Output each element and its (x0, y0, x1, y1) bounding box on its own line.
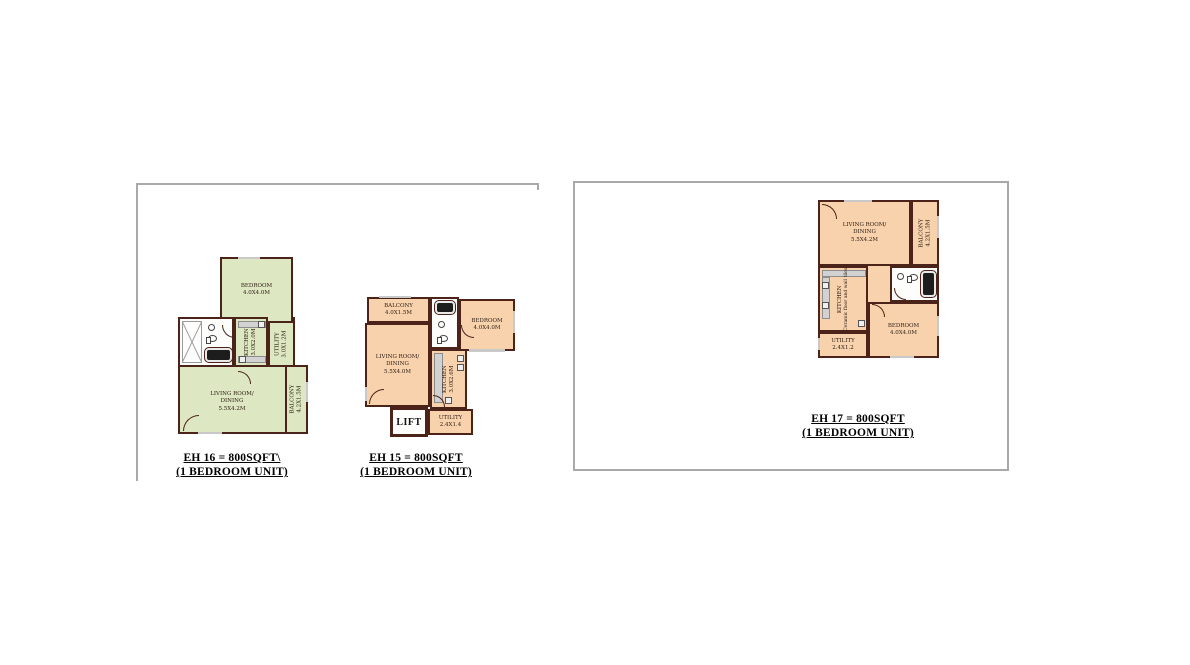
room-dims: 2.4X1.2 (832, 345, 853, 352)
window (365, 387, 367, 401)
room-dims: 3.0X2.6M (448, 365, 455, 392)
room-dims: 2.4X1.4 (440, 422, 461, 429)
floorplan-eh17: LIVING ROOM/ DINING 5.5X4.2M BALCONY 4.2… (818, 200, 939, 358)
room-kitchen: KITCHEN Ceramic floor and wall tiles (818, 266, 868, 332)
shaft-x-icon (182, 321, 202, 363)
appliance-icon (258, 321, 265, 328)
window (469, 349, 505, 352)
room-label: UTILITY (439, 415, 463, 422)
room-dims: 4.2X1.5M (297, 386, 304, 413)
room-dims: 3.0X1.2M (282, 330, 289, 357)
window (844, 200, 872, 202)
window (937, 316, 939, 336)
bathtub-icon (921, 271, 936, 297)
room-balcony: BALCONY 4.2X1.5M (285, 365, 308, 434)
room-dims: 4.0X4.0M (890, 330, 917, 337)
window (818, 338, 820, 350)
caption-line1: EH 16 = 800SQFT\ (162, 451, 302, 465)
room-label: DINING (386, 361, 409, 368)
appliance-icon (822, 282, 829, 289)
window (198, 432, 222, 434)
room-dims: 5.5X4.0M (384, 369, 411, 376)
sink-icon (208, 324, 215, 331)
room-label: KITCHEN (441, 365, 448, 393)
caption-line2: (1 BEDROOM UNIT) (788, 426, 928, 440)
room-label: BALCONY (384, 303, 413, 310)
room-utility: UTILITY 2.4X1.4 (428, 409, 473, 435)
room-dims: 4.0X4.0M (243, 290, 270, 297)
room-dims: 4.2X1.5M (925, 219, 932, 246)
toilet-icon (439, 335, 448, 342)
room-label: DINING (221, 398, 244, 405)
window (238, 257, 260, 259)
room-kitchen: KITCHEN 3.0X2.0M (234, 317, 268, 367)
room-label: LIVING ROOM/ (376, 354, 420, 361)
room-utility: UTILITY 2.4X1.2 (818, 332, 868, 358)
window (513, 311, 515, 333)
window (379, 296, 411, 298)
caption-line1: EH 15 = 800SQFT (346, 451, 486, 465)
room-dims: 4.0X4.0M (473, 325, 500, 332)
room-label: BEDROOM (241, 283, 272, 290)
appliance-icon (822, 302, 829, 309)
room-dims: 3.0X2.0M (251, 328, 258, 355)
bathtub-icon (435, 301, 455, 314)
room-bathroom (430, 297, 459, 349)
room-label: BEDROOM (888, 323, 919, 330)
window (890, 356, 914, 358)
room-label: DINING (853, 229, 876, 236)
appliance-icon (858, 320, 865, 327)
caption-line2: (1 BEDROOM UNIT) (162, 465, 302, 479)
room-dims: 5.5X4.2M (851, 237, 878, 244)
bathtub-icon (205, 348, 232, 362)
appliance-icon (239, 356, 246, 363)
floorplan-eh15: BALCONY 4.0X1.5M LIVING ROOM/ DINING 5.5… (365, 295, 515, 437)
room-label: BALCONY (918, 219, 925, 248)
room-label: BEDROOM (471, 318, 502, 325)
caption-eh16: EH 16 = 800SQFT\ (1 BEDROOM UNIT) (162, 451, 302, 480)
room-label: LIVING ROOM/ (210, 391, 254, 398)
room-bedroom: BEDROOM 4.0X4.0M (220, 257, 293, 323)
page: { "colors": { "wall": "#4b2318", "plan_g… (0, 0, 1190, 665)
caption-eh17: EH 17 = 800SQFT (1 BEDROOM UNIT) (788, 412, 928, 441)
room-utility: UTILITY 3.0X1.2M (268, 321, 295, 367)
appliance-icon (445, 397, 452, 404)
appliance-icon (457, 364, 464, 371)
lift-label: LIFT (396, 417, 421, 428)
room-dims: 4.0X1.5M (385, 310, 412, 317)
sink-icon (897, 273, 904, 280)
toilet-icon (909, 274, 918, 281)
toilet-icon (208, 335, 217, 342)
room-label: UTILITY (831, 338, 855, 345)
lift: LIFT (390, 407, 428, 437)
caption-eh15: EH 15 = 800SQFT (1 BEDROOM UNIT) (346, 451, 486, 480)
room-label: LIVING ROOM/ (843, 222, 887, 229)
room-label: UTILITY (274, 332, 281, 356)
window (937, 216, 939, 238)
caption-line1: EH 17 = 800SQFT (788, 412, 928, 426)
window (306, 382, 308, 402)
room-note: Ceramic floor and wall tiles (844, 268, 849, 331)
sink-icon (438, 321, 445, 328)
room-balcony: BALCONY 4.0X1.5M (367, 297, 430, 323)
floorplan-eh16: BEDROOM 4.0X4.0M KITCHEN 3.0X2.0M UTILIT… (178, 257, 308, 434)
appliance-icon (457, 355, 464, 362)
caption-line2: (1 BEDROOM UNIT) (346, 465, 486, 479)
room-balcony: BALCONY 4.2X1.5M (911, 200, 939, 266)
room-label: KITCHEN (837, 285, 844, 313)
room-dims: 5.5X4.2M (218, 406, 245, 413)
